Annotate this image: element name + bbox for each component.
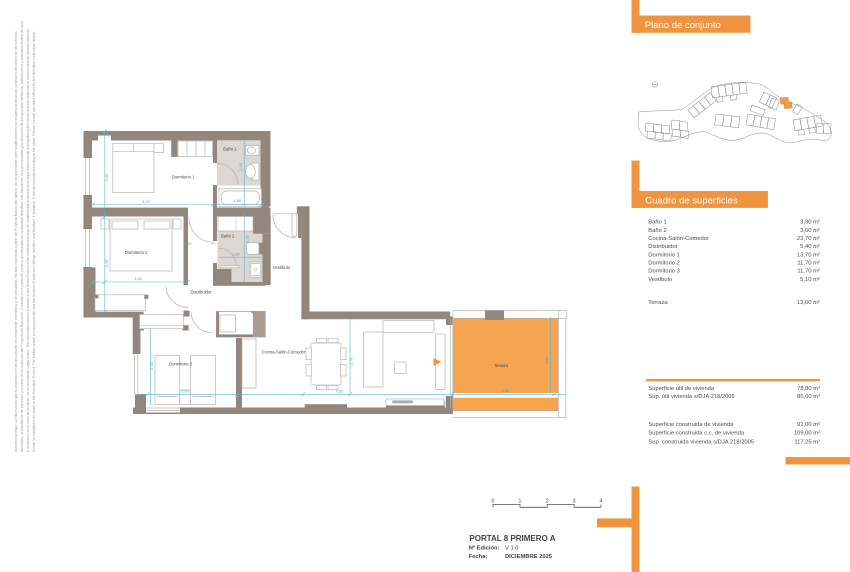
svg-text:85,60 m²: 85,60 m²: [797, 394, 820, 400]
svg-text:23,70 m²: 23,70 m²: [797, 236, 820, 242]
svg-text:Superficie útil de vivienda: Superficie útil de vivienda: [648, 386, 715, 392]
svg-text:wt1: wt1: [188, 241, 193, 245]
svg-text:78,80 m²: 78,80 m²: [797, 386, 820, 392]
svg-text:Dormitorio 1: Dormitorio 1: [172, 174, 195, 179]
svg-text:3,40: 3,40: [105, 174, 109, 181]
svg-text:0: 0: [492, 499, 495, 505]
svg-text:5,40 m²: 5,40 m²: [800, 244, 820, 250]
svg-text:Advertencia legal: La informac: Advertencia legal: La información que se…: [14, 31, 18, 452]
svg-text:DICIEMBRE 2025: DICIEMBRE 2025: [505, 554, 553, 560]
svg-text:13,60 m²: 13,60 m²: [797, 300, 820, 306]
svg-text:Nº Edición:: Nº Edición:: [469, 546, 500, 552]
svg-text:2,20: 2,20: [246, 235, 250, 242]
svg-text:Sup. construida vivienda s/DJA: Sup. construida vivienda s/DJA 218/2005: [648, 439, 754, 445]
svg-text:3,90 m²: 3,90 m²: [800, 220, 820, 226]
svg-text:Terraza: Terraza: [494, 363, 509, 368]
svg-text:2,95: 2,95: [150, 362, 154, 369]
svg-text:Cocina-Salón-Comedor: Cocina-Salón-Comedor: [648, 236, 709, 242]
svg-text:2,43: 2,43: [239, 163, 243, 170]
svg-text:7,55: 7,55: [335, 389, 342, 393]
svg-text:2: 2: [546, 499, 549, 505]
svg-text:117,25 m²: 117,25 m²: [794, 439, 820, 445]
svg-text:Sup. útil vivienda s/DJA 218/2: Sup. útil vivienda s/DJA 218/2005: [648, 394, 734, 400]
svg-text:4,03: 4,03: [142, 200, 149, 204]
svg-text:3,40: 3,40: [545, 357, 549, 364]
svg-text:Vestíbulo: Vestíbulo: [273, 265, 291, 270]
svg-text:Cocina-Salón-Comedor: Cocina-Salón-Comedor: [262, 349, 306, 354]
svg-text:Cuadro de superficies: Cuadro de superficies: [645, 196, 738, 207]
svg-text:Plano de conjunto: Plano de conjunto: [645, 20, 721, 31]
svg-text:3,39: 3,39: [105, 260, 109, 267]
svg-text:4,00: 4,00: [502, 389, 509, 393]
svg-text:It shall be adapted in all cas: It shall be adapted in all cases to the …: [32, 31, 36, 452]
svg-text:13,70 m²: 13,70 m²: [797, 252, 820, 258]
svg-text:3: 3: [573, 499, 576, 505]
svg-text:V 1.0: V 1.0: [505, 546, 519, 552]
svg-text:4: 4: [600, 499, 603, 505]
svg-text:2,70: 2,70: [350, 358, 354, 365]
svg-text:Dormitorio 3: Dormitorio 3: [648, 269, 680, 275]
svg-text:5,10 m²: 5,10 m²: [800, 277, 820, 283]
svg-text:11,70 m²: 11,70 m²: [797, 261, 820, 267]
svg-text:derivadas, la tramitación de p: derivadas, la tramitación de permisos y …: [20, 21, 24, 452]
svg-text:1,88: 1,88: [234, 199, 241, 203]
svg-text:Vestíbulo: Vestíbulo: [648, 277, 672, 283]
svg-text:11,70 m²: 11,70 m²: [797, 269, 820, 275]
svg-text:Distribuidor: Distribuidor: [648, 244, 677, 250]
svg-text:3,45: 3,45: [134, 277, 141, 281]
svg-text:Terraza: Terraza: [648, 300, 668, 306]
svg-text:Dormitorio 2: Dormitorio 2: [648, 261, 680, 267]
svg-text:109,00 m²: 109,00 m²: [794, 431, 820, 437]
svg-text:Distribuidor: Distribuidor: [191, 290, 213, 295]
svg-text:Baño 2: Baño 2: [648, 228, 666, 234]
svg-text:Fecha:: Fecha:: [469, 554, 488, 560]
svg-text:Dormitorio 2: Dormitorio 2: [125, 250, 148, 255]
svg-text:3,60 m²: 3,60 m²: [800, 228, 820, 234]
svg-text:PORTAL 8 PRIMERO A: PORTAL 8 PRIMERO A: [469, 534, 555, 543]
svg-text:Baño 1: Baño 1: [648, 220, 666, 226]
svg-text:Baño 2: Baño 2: [221, 234, 235, 239]
svg-text:Superficie construida de vivie: Superficie construida de vivienda: [648, 422, 734, 428]
svg-text:1,60: 1,60: [232, 252, 239, 256]
svg-text:Dormitorio 1: Dormitorio 1: [648, 252, 680, 258]
svg-text:Baño 1: Baño 1: [223, 147, 237, 152]
svg-text:Dormitorio 3: Dormitorio 3: [169, 361, 192, 366]
svg-text:1: 1: [519, 499, 522, 505]
svg-text:y mobiliario, en el caso de in: y mobiliario, en el caso de incluirse, n…: [26, 29, 30, 452]
svg-text:5,65: 5,65: [181, 389, 188, 393]
svg-text:91,00 m²: 91,00 m²: [797, 422, 820, 428]
svg-text:Superficie construida c.c. de: Superficie construida c.c. de vivienda: [648, 431, 744, 437]
svg-text:wt1: wt1: [211, 241, 216, 245]
